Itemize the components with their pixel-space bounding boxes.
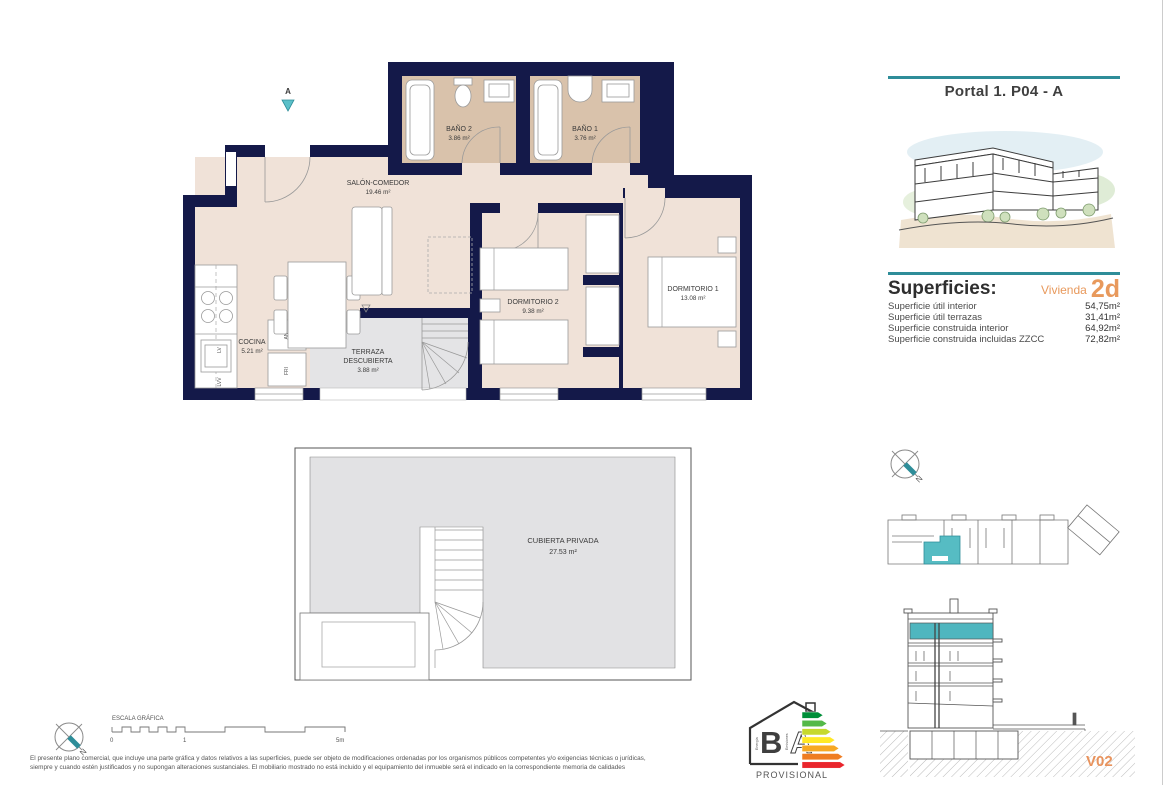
- provisional-label: PROVISIONAL: [756, 770, 828, 780]
- table-row: Superficie construida incluidas ZZCC 72,…: [888, 334, 1120, 345]
- appliance-label-fri: FRI: [284, 367, 290, 375]
- disclaimer-line1: El presente plano comercial, que incluye…: [30, 754, 736, 763]
- room-label-dorm1: DORMITORIO 1: [667, 286, 718, 293]
- row-label: Superficie útil interior: [888, 301, 977, 312]
- roof-area: 27.53 m²: [549, 549, 577, 556]
- scale-bar: ESCALA GRÁFICA 0 1 5m: [98, 710, 348, 750]
- scale-tick-5m: 5m: [336, 738, 344, 744]
- table-row: Superficie útil interior 54,75m²: [888, 301, 1120, 312]
- energy-rating-logo: B A Energía Emisiones PROVISIONAL: [740, 690, 845, 782]
- floor-plan: LV LVV AN FRI: [170, 52, 775, 407]
- superficies-title: Superficies:: [888, 278, 997, 300]
- room-area-banio1: 3.76 m²: [574, 135, 595, 142]
- superficies-rule: [888, 272, 1120, 275]
- row-value: 64,92m²: [1085, 323, 1120, 334]
- room-area-terraza: 3.88 m²: [357, 367, 378, 374]
- scale-tick-0: 0: [110, 738, 114, 744]
- north-label: N: [914, 474, 925, 485]
- roof-plan: CUBIERTA PRIVADA 27.53 m²: [283, 440, 703, 688]
- room-area-salon: 19.46 m²: [366, 189, 391, 196]
- version-label: V02: [1086, 753, 1113, 770]
- disclaimer-text: El presente plano comercial, que incluye…: [30, 754, 736, 772]
- room-label-salon: SALÓN-COMEDOR: [347, 178, 410, 187]
- row-label: Superficie útil terrazas: [888, 312, 982, 323]
- row-label: Superficie construida incluidas ZZCC: [888, 334, 1044, 345]
- room-label-banio1: BAÑO 1: [572, 124, 598, 133]
- scale-title: ESCALA GRÁFICA: [112, 715, 164, 722]
- logo-letter-b: B: [760, 725, 782, 760]
- table-row: Superficie construida interior 64,92m²: [888, 323, 1120, 334]
- page-edge-rule: [1162, 0, 1163, 785]
- site-plan: [882, 498, 1132, 573]
- room-label-terraza2: DESCUBIERTA: [343, 358, 392, 365]
- logo-emisiones-label: Emisiones: [785, 733, 789, 750]
- vivienda-label: Vivienda: [1041, 283, 1087, 300]
- room-label-dorm2: DORMITORIO 2: [507, 299, 558, 306]
- appliance-label-lv: LV: [217, 346, 223, 352]
- entrance-arrow-icon: [282, 100, 294, 111]
- vivienda-code: 2d: [1091, 278, 1120, 300]
- roof-lower-room: [300, 613, 429, 680]
- room-label-cocina: COCINA: [238, 339, 266, 346]
- plan-sheet: LV LVV AN FRI: [0, 0, 1170, 785]
- highlighted-floor: [910, 623, 993, 639]
- scale-tick-1: 1: [183, 738, 187, 744]
- logo-energia-label: Energía: [755, 737, 759, 750]
- room-area-dorm2: 9.38 m²: [522, 308, 543, 315]
- row-value: 72,82m²: [1085, 334, 1120, 345]
- entrance-marker: A: [282, 87, 294, 111]
- row-value: 54,75m²: [1085, 301, 1120, 312]
- entrance-letter: A: [285, 87, 291, 96]
- page-title: Portal 1. P04 - A: [888, 83, 1120, 100]
- table-row: Superficie útil terrazas 31,41m²: [888, 312, 1120, 323]
- room-area-cocina: 5.21 m²: [241, 348, 262, 355]
- building-section: [880, 585, 1135, 780]
- roof-label: CUBIERTA PRIVADA: [527, 536, 598, 545]
- appliance-label-lvv: LVV: [217, 377, 223, 387]
- room-area-dorm1: 13.08 m²: [681, 295, 706, 302]
- row-value: 31,41m²: [1085, 312, 1120, 323]
- superficies-table: Superficie útil interior 54,75m² Superfi…: [888, 301, 1120, 345]
- disclaimer-line2: siempre y cuando estén justificados y no…: [30, 763, 736, 772]
- energy-arrows-icon: [802, 712, 845, 768]
- row-label: Superficie construida interior: [888, 323, 1008, 334]
- building-illustration: [893, 118, 1118, 260]
- compass-icon: N: [886, 445, 930, 489]
- room-label-banio2: BAÑO 2: [446, 124, 472, 133]
- room-area-banio2: 3.86 m²: [448, 135, 469, 142]
- header-rule: [888, 76, 1120, 79]
- room-label-terraza1: TERRAZA: [352, 349, 385, 356]
